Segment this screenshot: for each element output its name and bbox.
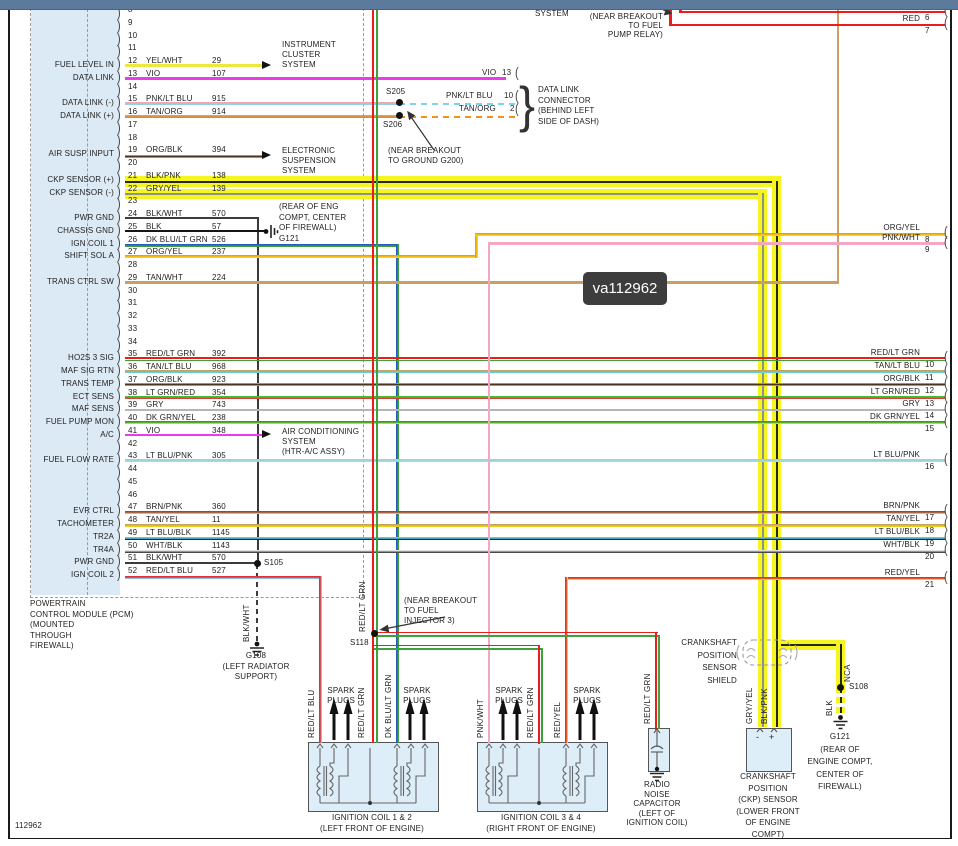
pcm-pin-number: 38 (128, 388, 137, 398)
pcm-pin-wire-name: BLK/WHT (146, 209, 183, 219)
pcm-pin-circuit-number: 968 (212, 362, 226, 372)
pcm-pin-function-label: IGN COIL 2 (28, 570, 114, 580)
text-block-g121-right: ENGINE COMPT, (795, 756, 885, 769)
pcm-pin-number: 31 (128, 298, 137, 308)
pcm-pin-function-label: CHASSIS GND (28, 226, 114, 236)
pcm-pin-number: 46 (128, 490, 137, 500)
text-block-electronic-suspension: ELECTRONIC (282, 146, 335, 156)
pcm-pin-wire-name: BLK (146, 222, 162, 232)
wiring-diagram-page: va112962 112962 - + )8)9)10)11)12YEL/WHT… (0, 0, 958, 846)
splice-label-s118: S118 (350, 638, 369, 648)
pcm-pin-function-label: PWR GND (28, 557, 114, 567)
text-block-instrument-cluster: CLUSTER (282, 50, 320, 60)
ckp-terminal-minus: - (756, 732, 759, 742)
pcm-pin-number: 37 (128, 375, 137, 385)
wire-segment (541, 648, 543, 744)
splice-dot (396, 99, 403, 106)
right-pin-wire-name: TAN/LT BLU (792, 361, 920, 371)
pcm-pin-function-label: EVR CTRL (28, 506, 114, 516)
watermark-badge: va112962 (583, 272, 667, 305)
pcm-pin-circuit-number: 224 (212, 273, 226, 283)
wire-segment (475, 233, 478, 259)
right-pin-bracket: ( (944, 414, 948, 429)
pcm-pin-function-label: TACHOMETER (28, 519, 114, 529)
pcm-pin-number: 41 (128, 426, 137, 436)
pcm-pin-number: 32 (128, 311, 137, 321)
text-block-coil34-label: (RIGHT FRONT OF ENGINE) (461, 823, 621, 834)
splice-dot (396, 112, 403, 119)
text-block-s123-note: TO FUEL (563, 21, 663, 30)
dlc-stub-wire-name: PNK/LT BLU (446, 91, 493, 101)
right-pin-number: 12 (925, 386, 934, 396)
spark-plugs-label: SPARK (562, 686, 612, 695)
right-pin-wire-name: BRN/PNK (792, 501, 920, 511)
pcm-title-line: THROUGH (30, 631, 72, 640)
pcm-pin-wire-name: GRY/YEL (146, 184, 182, 194)
vertical-wire-label-cap-wire: RED/LT GRN (643, 650, 652, 724)
right-pin-wire-name: ORG/BLK (792, 374, 920, 384)
right-pin-wire-name: GRY (792, 399, 920, 409)
text-block-g200-note: TO GROUND G200) (388, 156, 463, 166)
pcm-pin-function-label: A/C (28, 430, 114, 440)
pcm-pin-number: 18 (128, 133, 137, 143)
vertical-wire-label-drain-nca: NCA (843, 652, 852, 682)
system-reference-arrow (262, 61, 271, 69)
pcm-pin-function-label: AIR SUSP INPUT (28, 149, 114, 159)
vertical-wire-label-coil12-w3: DK BLU/LT GRN (384, 646, 393, 738)
vertical-wire-label-inj-wire: RED/LT GRN (358, 580, 367, 632)
splice-label-s105: S105 (264, 558, 283, 568)
text-block-g121-left: OF FIREWALL) (279, 223, 337, 234)
text-block-cap-label: (LEFT OF (612, 809, 702, 819)
pcm-pin-wire-name: WHT/BLK (146, 541, 183, 551)
text-block-ckp-label: (LOWER FRONT (713, 806, 823, 818)
text-block-shield-label: SHIELD (662, 675, 737, 688)
text-block-shield-label: CRANKSHAFT (662, 637, 737, 650)
pcm-pin-number: 29 (128, 273, 137, 283)
pcm-pin-circuit-number: 1143 (212, 541, 230, 551)
pcm-pin-wire-name: VIO (146, 426, 160, 436)
pcm-pin-number: 26 (128, 235, 137, 245)
wire-segment (374, 648, 543, 650)
pcm-pin-circuit-number: 743 (212, 400, 226, 410)
text-block-shield-label: SENSOR (662, 662, 737, 675)
right-pin-number: 11 (925, 373, 934, 383)
pcm-pin-circuit-number: 915 (212, 94, 226, 104)
frame-bottom (8, 838, 952, 840)
pcm-pin-number: 19 (128, 145, 137, 155)
pcm-pin-number: 28 (128, 260, 137, 270)
pcm-pin-number: 11 (128, 43, 137, 53)
wire-segment (840, 687, 842, 716)
wire-segment (125, 181, 779, 183)
pcm-pin-wire-name: BRN/PNK (146, 502, 183, 512)
pcm-pin-number: 9 (128, 18, 133, 28)
right-pin-number: 7 (925, 26, 930, 36)
wire-segment (125, 281, 839, 284)
right-pin-bracket: ( (944, 235, 948, 250)
pcm-pin-function-label: DATA LINK (28, 73, 114, 83)
pcm-pin-wire-name: TAN/WHT (146, 273, 183, 283)
text-block-g121-right: (REAR OF (795, 744, 885, 757)
pcm-pin-circuit-number: 923 (212, 375, 226, 385)
pcm-pin-wire-name: BLK/WHT (146, 553, 183, 563)
text-block-data-link-connector: SIDE OF DASH) (538, 117, 599, 128)
pcm-pin-number: 33 (128, 324, 137, 334)
ignition-coil-1-2-box (308, 742, 439, 812)
pcm-pin-wire-name: YEL/WHT (146, 56, 183, 66)
pcm-title-line: FIREWALL) (30, 641, 74, 650)
right-pin-wire-name: TAN/YEL (792, 514, 920, 524)
pcm-pin-function-label: TR2A (28, 532, 114, 542)
pcm-pin-number: 40 (128, 413, 137, 423)
pcm-pin-circuit-number: 238 (212, 413, 226, 423)
splice-label-s206: S206 (383, 120, 402, 130)
pcm-pin-number: 49 (128, 528, 137, 538)
window-titlebar (0, 0, 958, 10)
pcm-pin-circuit-number: 237 (212, 247, 226, 257)
pcm-pin-circuit-number: 570 (212, 209, 226, 219)
text-block-g121-left: (REAR OF ENG (279, 202, 339, 213)
right-pin-wire-name: DK GRN/YEL (792, 412, 920, 422)
text-block-ckp-label: OF ENGINE (713, 817, 823, 829)
pcm-pin-number: 44 (128, 464, 137, 474)
pcm-pin-circuit-number: 1145 (212, 528, 230, 538)
splice-dot (254, 560, 261, 567)
text-block-g200-note: (NEAR BREAKOUT (388, 146, 461, 156)
pcm-pin-number: 15 (128, 94, 137, 104)
pcm-pin-number: 48 (128, 515, 137, 525)
text-block-s123-note: PUMP RELAY) (563, 30, 663, 39)
wire-segment (488, 242, 491, 743)
text-block-air-conditioning: (HTR-A/C ASSY) (282, 447, 345, 457)
text-block-instrument-cluster: SYSTEM (282, 60, 316, 70)
pcm-pin-function-label: MAF SENS (28, 404, 114, 414)
pcm-pin-number: 14 (128, 82, 137, 92)
pcm-pin-number: 27 (128, 247, 137, 257)
right-pin-number: 6 (925, 13, 930, 23)
pcm-pin-circuit-number: 138 (212, 171, 226, 181)
dlc-stub-bracket: ( (515, 66, 519, 81)
pcm-title-line: POWERTRAIN (30, 599, 86, 608)
pcm-pin-wire-name: TAN/YEL (146, 515, 180, 525)
right-pin-number: 15 (925, 424, 934, 434)
text-block-electronic-suspension: SUSPENSION (282, 156, 336, 166)
pcm-pin-function-label: SHIFT SOL A (28, 251, 114, 261)
pcm-pin-function-label: ECT SENS (28, 392, 114, 402)
pcm-pin-number: 50 (128, 541, 137, 551)
dlc-brace: } (519, 77, 535, 135)
text-block-inj3-note: TO FUEL (404, 606, 439, 616)
text-block-data-link-connector: (BEHIND LEFT (538, 106, 594, 117)
pcm-pin-wire-name: BLK/PNK (146, 171, 181, 181)
text-block-ckp-label: CRANKSHAFT (713, 771, 823, 783)
wire-segment (776, 181, 778, 728)
pcm-pin-function-label: TRANS CTRL SW (28, 277, 114, 287)
splice-label-s108: S108 (849, 682, 868, 692)
right-pin-number: 8 (925, 235, 930, 245)
frame-right (950, 9, 952, 839)
right-pin-number: 18 (925, 526, 934, 536)
right-pin-number: 16 (925, 462, 934, 472)
pcm-pin-number: 36 (128, 362, 137, 372)
pcm-title-line: (MOUNTED (30, 620, 74, 629)
right-pin-wire-name: WHT/BLK (792, 540, 920, 550)
pcm-pin-circuit-number: 527 (212, 566, 226, 576)
right-pin-bracket: ( (944, 542, 948, 557)
wire-segment (396, 244, 399, 744)
pcm-pin-number: 20 (128, 158, 137, 168)
pcm-pin-number: 25 (128, 222, 137, 232)
pcm-pin-wire-name: LT BLU/BLK (146, 528, 191, 538)
right-pin-wire-name: LT BLU/PNK (792, 450, 920, 460)
pcm-pin-function-label: DATA LINK (+) (28, 111, 114, 121)
right-pin-bracket: ( (944, 570, 948, 585)
pcm-pin-bracket: ) (117, 567, 121, 582)
pcm-pin-circuit-number: 526 (212, 235, 226, 245)
radio-noise-capacitor-box (648, 728, 670, 772)
right-pin-wire-name: RED/YEL (792, 568, 920, 578)
right-pin-bracket: ( (944, 16, 948, 31)
right-pin-wire-name: LT BLU/BLK (792, 527, 920, 537)
frame-left (8, 9, 10, 839)
pcm-pin-number: 16 (128, 107, 137, 117)
pcm-pin-wire-name: DK BLU/LT GRN (146, 235, 208, 245)
right-pin-number: 13 (925, 399, 934, 409)
text-block-g108: (LEFT RADIATOR (216, 662, 296, 673)
text-block-g121-right: G121 (795, 731, 885, 744)
vertical-wire-label-coil34-w2: RED/LT GRN (526, 664, 535, 738)
text-block-data-link-connector: CONNECTOR (538, 96, 591, 107)
pcm-pin-number: 30 (128, 286, 137, 296)
pcm-pin-circuit-number: 107 (212, 69, 226, 79)
text-block-cap-label: CAPACITOR (612, 799, 702, 809)
vertical-wire-label-coil34-w3: RED/YEL (553, 676, 562, 738)
pcm-pin-number: 45 (128, 477, 137, 487)
vertical-wire-label-g108-wire: BLK/WHT (242, 584, 251, 642)
text-block-coil34-label: IGNITION COIL 3 & 4 (461, 812, 621, 823)
wire-segment (374, 632, 658, 634)
pcm-pin-number: 51 (128, 553, 137, 563)
text-block-g121-left: COMPT, CENTER (279, 213, 346, 224)
right-pin-number: 10 (925, 360, 934, 370)
right-pin-bracket: ( (944, 452, 948, 467)
doc-number: 112962 (15, 821, 42, 831)
wire-segment (374, 635, 660, 637)
pcm-pin-number: 39 (128, 400, 137, 410)
pcm-pin-function-label: PWR GND (28, 213, 114, 223)
pcm-pin-circuit-number: 360 (212, 502, 226, 512)
pcm-pin-circuit-number: 305 (212, 451, 226, 461)
pcm-pin-wire-name: GRY (146, 400, 164, 410)
pcm-pin-function-label: FUEL FLOW RATE (28, 455, 114, 465)
right-pin-number: 20 (925, 552, 934, 562)
text-block-air-conditioning: AIR CONDITIONING (282, 427, 359, 437)
text-block-shield-label: POSITION (662, 650, 737, 663)
text-block-electronic-suspension: SYSTEM (282, 166, 316, 176)
pcm-pin-wire-name: LT BLU/PNK (146, 451, 193, 461)
pcm-pin-circuit-number: 11 (212, 515, 221, 525)
pcm-pin-function-label: HO2S 3 SIG (28, 353, 114, 363)
pcm-pin-wire-name: TAN/ORG (146, 107, 183, 117)
text-block-inj3-note: (NEAR BREAKOUT (404, 596, 477, 606)
pcm-pin-wire-name: VIO (146, 69, 160, 79)
pcm-pin-function-label: MAF SIG RTN (28, 366, 114, 376)
vertical-wire-label-coil12-w1: RED/LT BLU (307, 664, 316, 738)
right-pin-wire-name: RED/LT GRN (792, 348, 920, 358)
pcm-pin-number: 22 (128, 184, 137, 194)
ignition-coil-3-4-box (477, 742, 608, 812)
splice-label-s205: S205 (386, 87, 405, 97)
right-pin-number: 14 (925, 411, 934, 421)
pcm-pin-function-label: IGN COIL 1 (28, 239, 114, 249)
vertical-wire-label-coil34-w1: PNK/WHT (476, 670, 485, 738)
pcm-pin-function-label: FUEL PUMP MON (28, 417, 114, 427)
pcm-pin-number: 24 (128, 209, 137, 219)
right-pin-wire-name: RED (792, 14, 920, 24)
pcm-pin-function-label: CKP SENSOR (-) (28, 188, 114, 198)
text-block-inj3-note: INJECTOR 3) (404, 616, 455, 626)
pcm-pin-circuit-number: 394 (212, 145, 226, 155)
g121-right-ground-symbol (834, 715, 848, 728)
splice-dot (371, 630, 378, 637)
right-pin-number: 19 (925, 539, 934, 549)
right-pin-wire-name: ORG/YEL (792, 223, 920, 233)
dlc-stub-pin-number: 2 (510, 104, 515, 114)
wire-segment (125, 77, 506, 80)
pcm-pin-number: 10 (128, 31, 137, 41)
pcm-pin-number: 43 (128, 451, 137, 461)
text-block-g121-left: G121 (279, 234, 299, 245)
text-block-data-link-connector: DATA LINK (538, 85, 579, 96)
pcm-pin-circuit-number: 57 (212, 222, 221, 232)
text-block-instrument-cluster: INSTRUMENT (282, 40, 336, 50)
pcm-pin-function-label: TRANS TEMP (28, 379, 114, 389)
spark-plugs-label: SPARK (392, 686, 442, 695)
dlc-stub-pin-number: 10 (504, 91, 513, 101)
wire-segment (658, 635, 660, 730)
pcm-pin-wire-name: TAN/LT BLU (146, 362, 192, 372)
system-reference-arrow (262, 151, 271, 159)
pcm-pin-function-label: DATA LINK (-) (28, 98, 114, 108)
pcm-pin-circuit-number: 354 (212, 388, 226, 398)
wire-segment (565, 577, 568, 743)
pcm-pin-wire-name: ORG/BLK (146, 145, 183, 155)
pcm-pin-wire-name: RED/LT BLU (146, 566, 193, 576)
text-block-coil12-label: (LEFT FRONT OF ENGINE) (292, 823, 452, 834)
wire-segment (655, 632, 657, 730)
pcm-pin-function-label: TR4A (28, 545, 114, 555)
ckp-terminal-plus: + (769, 732, 774, 742)
splice-dot (837, 684, 844, 691)
text-block-g108: SUPPORT) (216, 672, 296, 683)
text-block-cap-label: RADIO (612, 780, 702, 790)
vertical-wire-label-ckp-w2: BLK/PNK (760, 664, 769, 724)
right-pin-wire-name: LT GRN/RED (792, 387, 920, 397)
text-block-coil12-label: IGNITION COIL 1 & 2 (292, 812, 452, 823)
vertical-wire-label-coil12-w2: RED/LT GRN (357, 664, 366, 738)
text-block-cap-label: IGNITION COIL) (612, 818, 702, 828)
pcm-pin-wire-name: LT GRN/RED (146, 388, 195, 398)
pcm-pin-circuit-number: 392 (212, 349, 226, 359)
right-pin-number: 9 (925, 245, 930, 255)
dlc-stub-pin-number: 13 (502, 68, 511, 78)
right-pin-number: 17 (925, 513, 934, 523)
pcm-pin-number: 21 (128, 171, 137, 181)
dlc-stub-wire-name: TAN/ORG (459, 104, 496, 114)
spark-plugs-label: PLUGS (562, 696, 612, 705)
pcm-pin-circuit-number: 570 (212, 553, 226, 563)
pcm-pin-wire-name: ORG/YEL (146, 247, 183, 257)
text-block-cap-label: NOISE (612, 790, 702, 800)
wire-segment (319, 576, 322, 744)
pcm-pin-number: 12 (128, 56, 137, 66)
pcm-pin-wire-name: PNK/LT BLU (146, 94, 193, 104)
wire-segment (399, 116, 518, 118)
pcm-title-line: CONTROL MODULE (PCM) (30, 610, 134, 619)
pcm-pin-circuit-number: 348 (212, 426, 226, 436)
text-block-ckp-label: (CKP) SENSOR (713, 794, 823, 806)
wire-segment (374, 645, 540, 647)
wire-segment (840, 644, 842, 688)
pcm-pin-wire-name: RED/LT GRN (146, 349, 195, 359)
pcm-pin-wire-name: DK GRN/YEL (146, 413, 196, 423)
vertical-wire-label-ckp-w1: GRY/YEL (745, 664, 754, 724)
text-block-s123-note: (NEAR BREAKOUT (563, 12, 663, 21)
pcm-pin-circuit-number: 139 (212, 184, 226, 194)
text-block-g108: G108 (216, 651, 296, 662)
pcm-pin-number: 42 (128, 439, 137, 449)
system-reference-arrow (262, 430, 271, 438)
right-pin-wire-name: PNK/WHT (792, 233, 920, 243)
pcm-pin-circuit-number: 29 (212, 56, 221, 66)
vertical-wire-label-drain-blk: BLK (825, 688, 834, 716)
text-block-air-conditioning: SYSTEM (282, 437, 316, 447)
dlc-stub-bracket: ( (515, 102, 519, 117)
pcm-pin-number: 34 (128, 337, 137, 347)
pcm-pin-number: 52 (128, 566, 137, 576)
pcm-pin-number: 35 (128, 349, 137, 359)
text-block-ckp-label: POSITION (713, 783, 823, 795)
pcm-pin-function-label: FUEL LEVEL IN (28, 60, 114, 70)
wire-segment (538, 645, 540, 744)
pcm-pin-function-label: CKP SENSOR (+) (28, 175, 114, 185)
right-pin-number: 21 (925, 580, 934, 590)
pcm-pin-number: 23 (128, 196, 137, 206)
pcm-pin-number: 17 (128, 120, 137, 130)
pcm-pin-wire-name: ORG/BLK (146, 375, 183, 385)
pcm-pin-circuit-number: 914 (212, 107, 226, 117)
pcm-pin-number: 47 (128, 502, 137, 512)
dlc-stub-wire-name: VIO (482, 68, 496, 78)
pcm-pin-number: 13 (128, 69, 137, 79)
spark-plugs-label: PLUGS (392, 696, 442, 705)
